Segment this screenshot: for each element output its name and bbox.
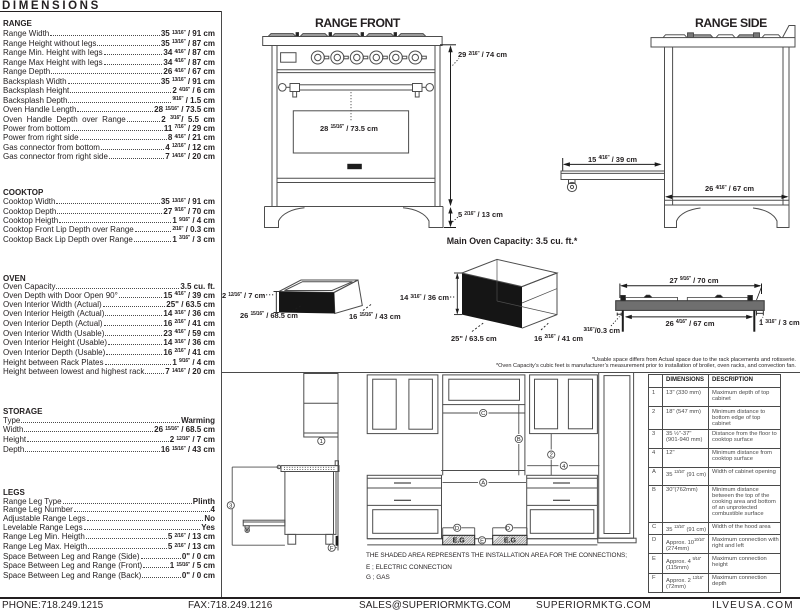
svg-text:1: 1: [320, 439, 323, 445]
svg-text:3: 3: [229, 503, 232, 509]
svg-text:C: C: [481, 411, 485, 417]
svg-text:D: D: [506, 526, 510, 532]
svg-text:F: F: [330, 546, 334, 552]
svg-text:B: B: [517, 437, 521, 443]
svg-text:E.G: E.G: [504, 537, 517, 544]
svg-text:E.G: E.G: [453, 537, 466, 544]
svg-text:D: D: [455, 526, 459, 532]
svg-text:A: A: [481, 481, 485, 487]
svg-text:E: E: [480, 538, 484, 544]
svg-text:2: 2: [550, 453, 553, 459]
